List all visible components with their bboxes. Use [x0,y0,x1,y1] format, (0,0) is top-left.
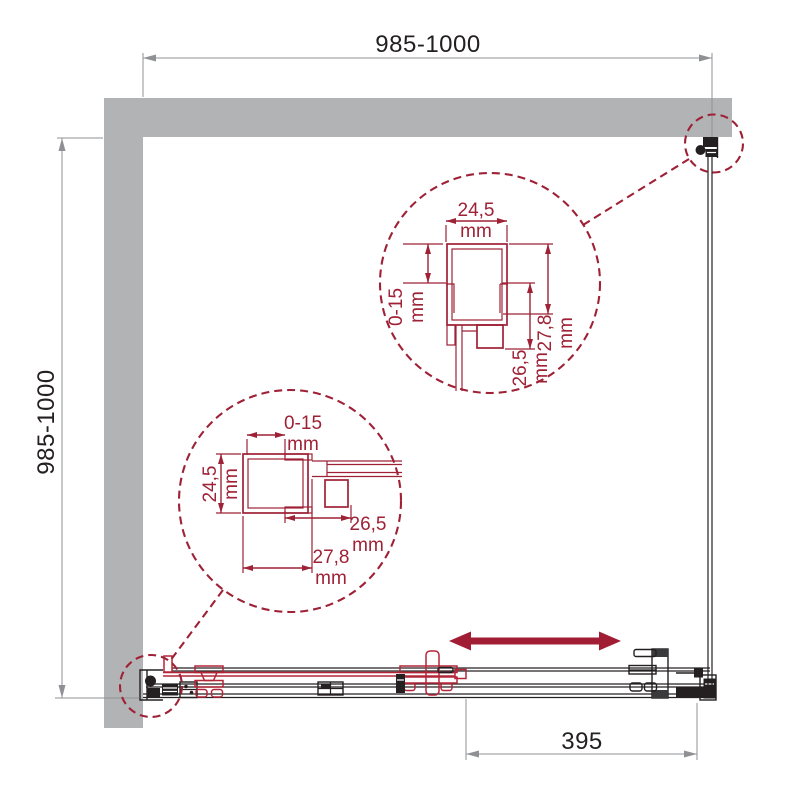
upper-dim-adjust-label: 0-15 mm [386,288,428,326]
upper-dim-adjust-unit: mm [407,288,428,326]
wall-left [104,98,143,728]
callout-connector-upper [583,159,689,225]
lower-dim-width-value: 24,5 [200,466,221,503]
upper-dim-adjust-value: 0-15 [386,288,407,326]
left-wall-bracket [140,670,197,700]
lower-dim-depth-inner-unit: mm [350,535,387,556]
lower-dim-depth-inner-value: 26,5 [350,514,387,535]
lower-dim-depth-total-value: 27,8 [313,547,350,568]
outer-dimension-lines [55,53,712,760]
top-rail-red [163,656,466,679]
slide-direction-arrow-icon [449,632,621,651]
lower-dim-adjust-value: 0-15 [284,413,322,434]
upper-dim-depth-inner-label: 26,5 mm [510,350,552,387]
detail-callout-circles [120,115,743,718]
walls [104,98,732,728]
technical-drawing-canvas: 985-1000 985-1000 395 24,5 mm 0-15 mm 27… [0,0,800,800]
dim-door-travel-label: 395 [561,728,603,756]
dim-width-top-label: 985-1000 [375,31,480,59]
lower-dim-depth-total-unit: mm [313,568,350,589]
upper-dim-width-value: 24,5 [458,200,495,221]
upper-dim-depth-inner-unit: mm [531,350,552,387]
upper-dim-depth-total-value: 27,8 [535,315,556,352]
callout-connector-lower [170,590,223,661]
lower-dim-depth-total-label: 27,8 mm [313,547,350,589]
roller-hanger-center [396,651,457,695]
top-glass-bracket [696,137,719,158]
upper-dim-width-unit: mm [458,221,495,242]
drawing-linework [0,0,800,800]
lower-dim-width-label: 24,5 mm [200,466,242,503]
wall-top [104,98,732,137]
upper-dim-depth-total-unit: mm [556,315,577,352]
lower-dim-width-unit: mm [221,466,242,503]
lower-dim-adjust-unit: mm [284,434,322,455]
dim-height-left-label: 985-1000 [33,369,61,474]
fixed-glass-panel [708,156,712,689]
lower-dim-adjust-label: 0-15 mm [284,413,322,455]
lower-dim-depth-inner-label: 26,5 mm [350,514,387,556]
upper-dim-width-label: 24,5 mm [458,200,495,242]
bottom-track-assembly [140,649,716,700]
upper-dim-depth-inner-value: 26,5 [510,350,531,387]
roller-unit-right [629,649,668,698]
upper-dim-depth-total-label: 27,8 mm [535,315,577,352]
